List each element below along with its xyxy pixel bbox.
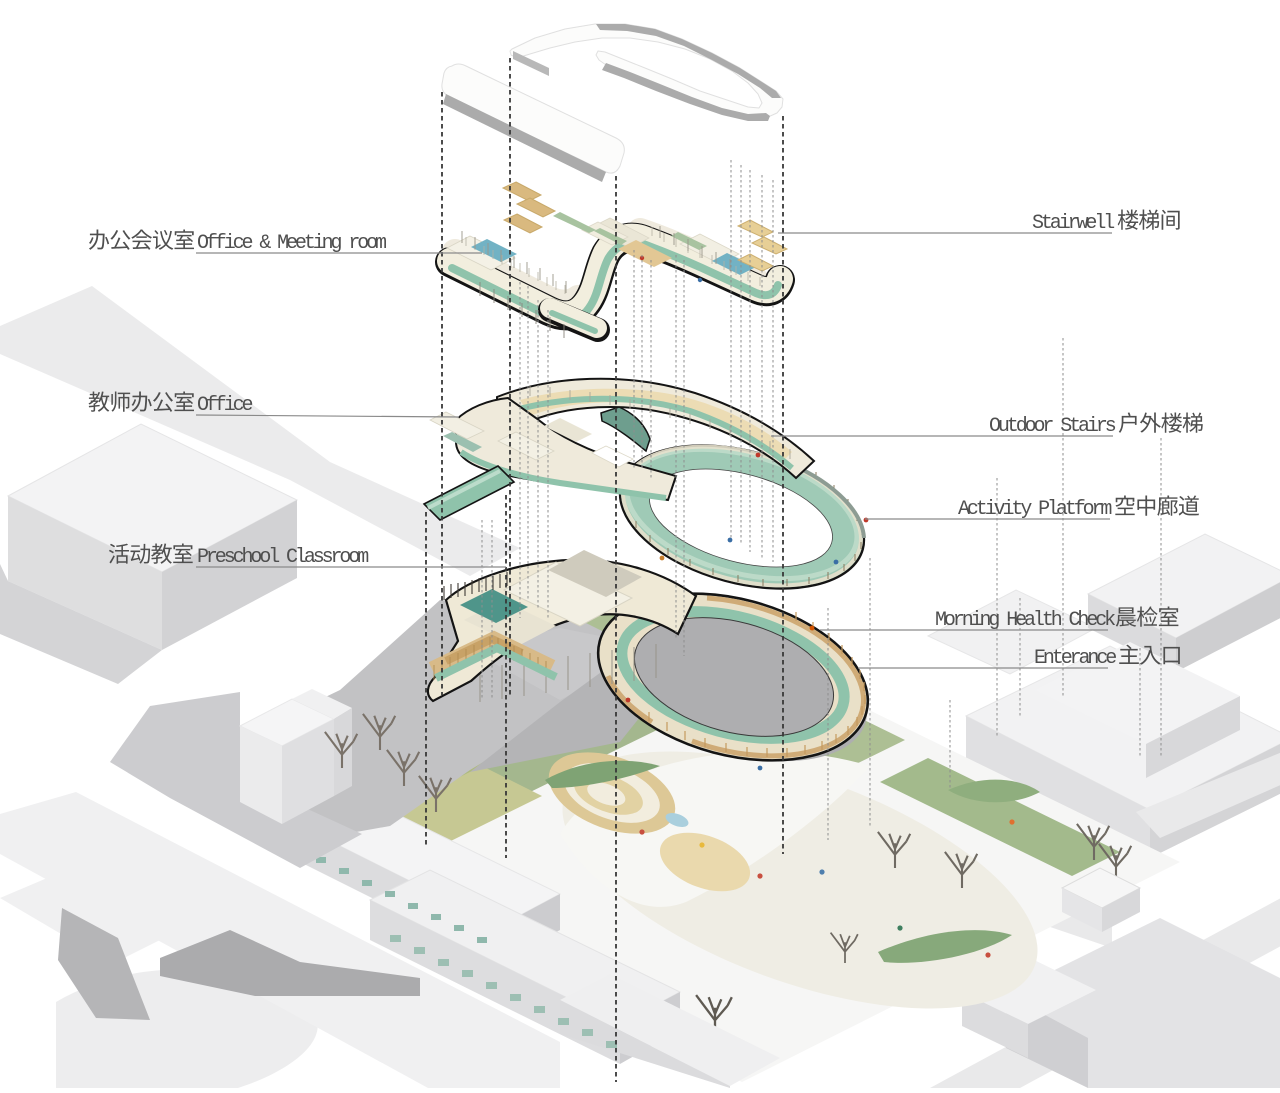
svg-text:Outdoor Stairs: Outdoor Stairs [989, 415, 1116, 438]
svg-text:Preschool Classroom: Preschool Classroom [197, 546, 368, 569]
svg-text:Stairwell: Stairwell [1032, 212, 1114, 235]
svg-text:Activity Platform: Activity Platform [958, 498, 1111, 521]
svg-text:Enterance: Enterance [1034, 647, 1116, 670]
svg-text:Office: Office [197, 394, 253, 417]
svg-text:Morning Health Check: Morning Health Check [935, 609, 1115, 632]
svg-text:Office & Meeting room: Office & Meeting room [197, 232, 386, 255]
